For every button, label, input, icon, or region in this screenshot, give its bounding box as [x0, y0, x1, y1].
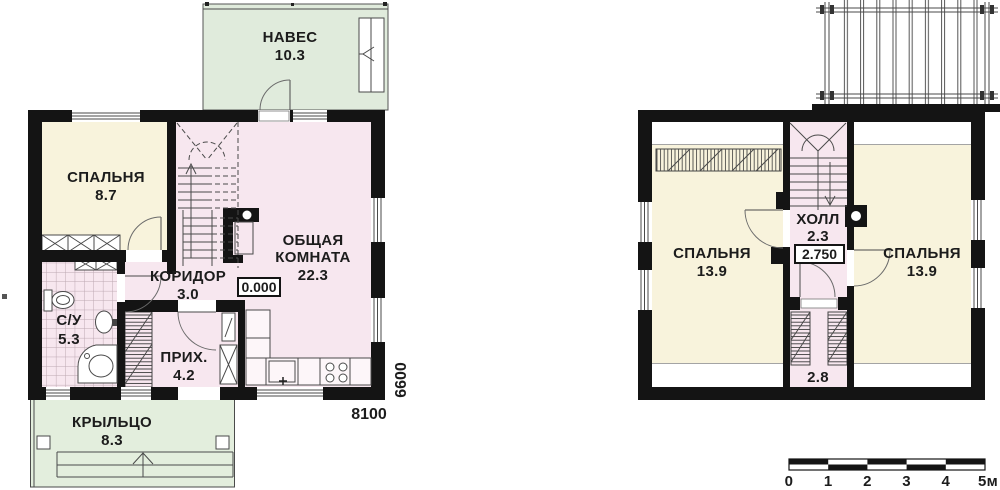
label-bedroom3: СПАЛЬНЯ [883, 245, 961, 262]
scale-tick-2: 2 [863, 473, 872, 490]
label-hall2: ХОЛЛ [796, 211, 839, 228]
label-hall2-area: 2.3 [807, 228, 829, 245]
window [121, 387, 151, 400]
label-livingroom-2: КОМНАТА [275, 249, 350, 266]
window [72, 110, 140, 122]
floor1-plan: НАВЕС 10.3 СПАЛЬНЯ 8.7 ОБЩАЯ КОМНАТА 22.… [2, 2, 410, 487]
hall-wardrobe [125, 312, 152, 387]
pergola-slats [838, 0, 982, 104]
elevation-value: 0.000 [241, 279, 276, 295]
label-corridor: КОРИДОР [150, 268, 226, 285]
window [371, 198, 385, 242]
kitchen-counter [246, 358, 371, 385]
scale-tick-0: 0 [785, 473, 794, 490]
edge-marker [2, 294, 7, 299]
pergola [812, 0, 1000, 112]
canopy-post-mark [205, 2, 209, 6]
canopy-post-mark [291, 3, 294, 6]
bedroom1-wardrobe [42, 235, 120, 252]
window [971, 268, 985, 308]
scale-bar: 0 1 2 3 4 5м [785, 459, 998, 490]
label-corridor-area: 3.0 [177, 286, 199, 303]
label-bathroom-area: 5.3 [58, 331, 80, 348]
elevation-mark-floor2: 2.750 [795, 245, 844, 263]
scale-tick-5: 5м [978, 473, 998, 490]
label-closet-area: 2.8 [807, 369, 829, 386]
bedroom2-wardrobe [656, 149, 781, 171]
porch-post [216, 436, 229, 449]
window [638, 270, 652, 310]
closet-left [791, 312, 810, 365]
electrical-panel [222, 313, 235, 341]
scale-tick-3: 3 [902, 473, 911, 490]
closet-right [828, 312, 847, 365]
chimney-block [845, 205, 867, 227]
porch-post [37, 436, 50, 449]
label-bedroom1: СПАЛЬНЯ [67, 169, 145, 186]
elevation-value: 2.750 [802, 246, 837, 262]
elevation-mark-floor1: 0.000 [238, 278, 280, 296]
canopy-post-mark [383, 2, 387, 6]
label-bedroom2: СПАЛЬНЯ [673, 245, 751, 262]
floor2-plan: СПАЛЬНЯ 13.9 СПАЛЬНЯ 13.9 ХОЛЛ 2.3 2.750… [638, 0, 1000, 400]
label-porch-area: 8.3 [101, 432, 123, 449]
kitchen-cabinet [246, 310, 270, 338]
window [971, 200, 985, 240]
window [257, 387, 323, 400]
scale-tick-1: 1 [824, 473, 833, 490]
label-livingroom-area: 22.3 [298, 267, 328, 284]
window [46, 387, 70, 400]
canopy-gate-symbol [359, 18, 384, 92]
label-bedroom1-area: 8.7 [95, 187, 117, 204]
window [293, 110, 327, 122]
label-hall-area: 4.2 [173, 367, 195, 384]
label-bedroom3-area: 13.9 [907, 263, 937, 280]
label-canopy-area: 10.3 [275, 47, 305, 64]
label-canopy: НАВЕС [263, 29, 318, 46]
label-hall: ПРИХ. [160, 349, 207, 366]
dimension-height: 6600 [393, 362, 410, 398]
floor-plan-drawing: НАВЕС 10.3 СПАЛЬНЯ 8.7 ОБЩАЯ КОМНАТА 22.… [0, 0, 1000, 490]
scale-tick-4: 4 [941, 473, 950, 490]
window [371, 298, 385, 342]
label-livingroom-1: ОБЩАЯ [283, 232, 344, 249]
window [638, 202, 652, 242]
floor-plan-page: НАВЕС 10.3 СПАЛЬНЯ 8.7 ОБЩАЯ КОМНАТА 22.… [0, 0, 1000, 490]
label-porch: КРЫЛЬЦО [72, 414, 152, 431]
bedroom1-floor [42, 122, 167, 250]
vent-shaft [220, 345, 237, 384]
label-bathroom: С/У [56, 312, 82, 329]
label-bedroom2-area: 13.9 [697, 263, 727, 280]
dimension-width: 8100 [351, 406, 387, 423]
